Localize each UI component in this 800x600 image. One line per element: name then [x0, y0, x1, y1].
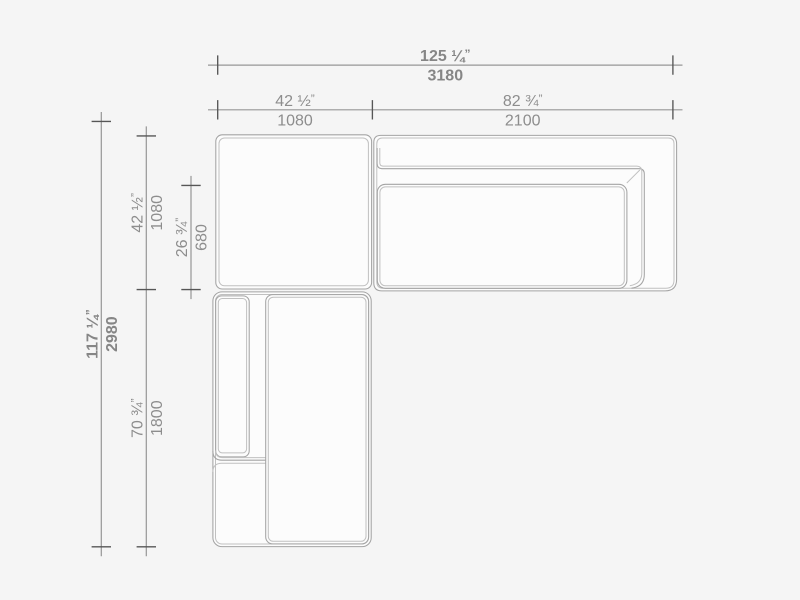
svg-text:680: 680: [194, 224, 211, 251]
svg-text:70 ¾”: 70 ¾”: [128, 398, 146, 438]
svg-text:1080: 1080: [149, 195, 166, 231]
svg-text:125 ¼”: 125 ¼”: [420, 47, 470, 65]
svg-text:1800: 1800: [149, 400, 166, 436]
svg-text:117 ¼”: 117 ¼”: [83, 309, 101, 359]
svg-text:3180: 3180: [428, 68, 464, 85]
svg-text:1080: 1080: [277, 112, 313, 129]
svg-text:42 ½”: 42 ½”: [275, 92, 315, 110]
svg-text:26 ¾”: 26 ¾”: [173, 218, 191, 258]
svg-text:42 ½”: 42 ½”: [128, 193, 146, 233]
svg-text:2980: 2980: [104, 316, 121, 352]
svg-text:82 ¾”: 82 ¾”: [503, 92, 543, 110]
svg-text:2100: 2100: [505, 112, 541, 129]
